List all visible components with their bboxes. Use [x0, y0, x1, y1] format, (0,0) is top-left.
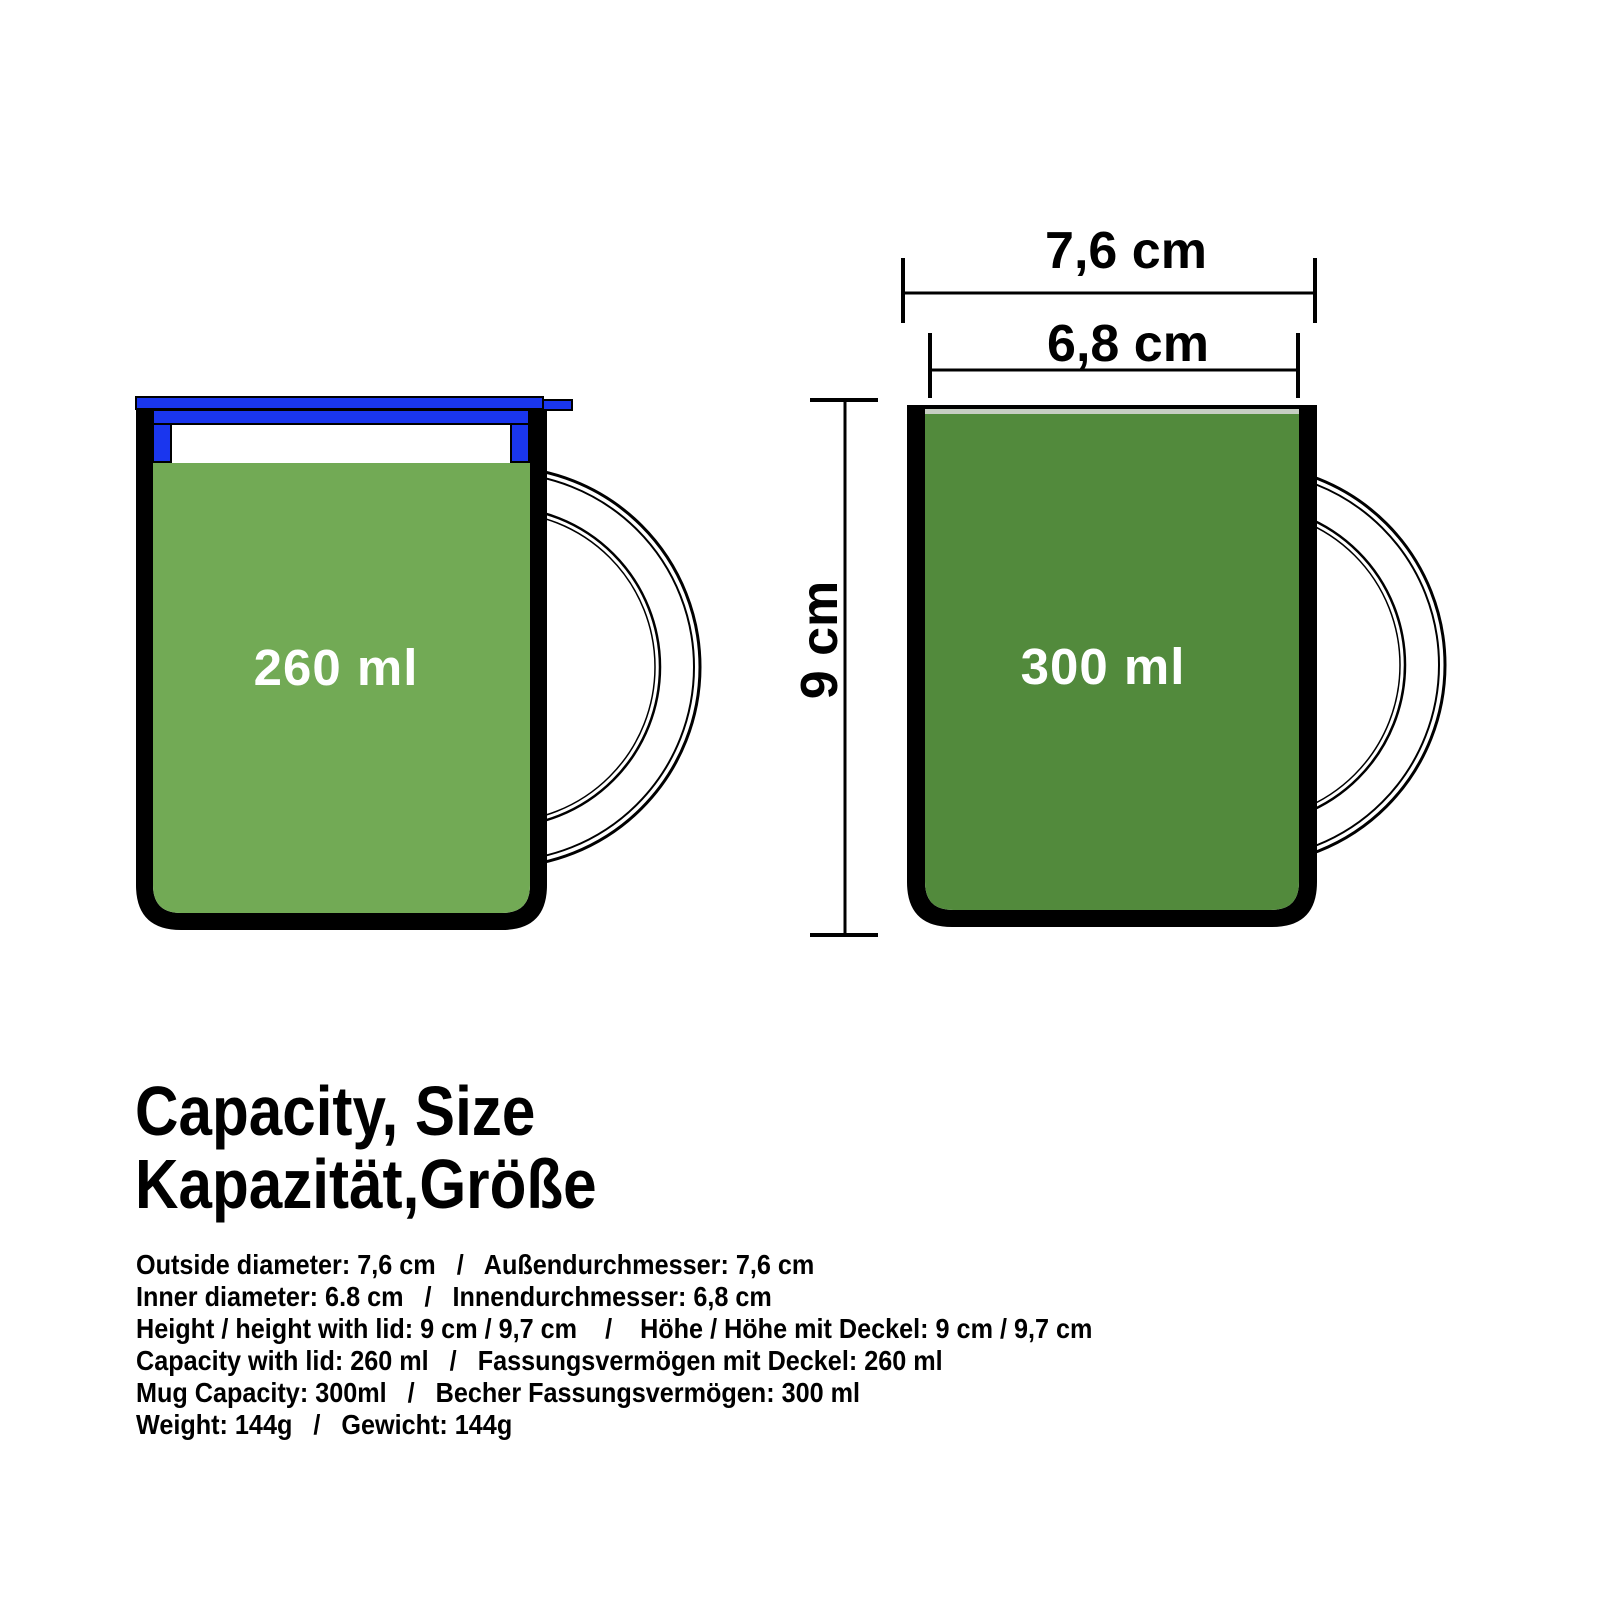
spec-height: Height / height with lid: 9 cm / 9,7 cm …	[136, 1315, 1092, 1343]
lid-plug-tab-left	[153, 424, 171, 462]
right-mug-capacity-label: 300 ml	[1021, 641, 1186, 692]
title-german: Kapazität,Größe	[135, 1149, 597, 1219]
height-label: 9 cm	[794, 581, 846, 700]
left-mug-capacity-label: 260 ml	[254, 642, 419, 693]
lid-skirt-bar	[153, 410, 529, 424]
lid-top-bar	[136, 397, 543, 409]
lid-lip	[543, 400, 572, 410]
outer-diameter-label: 7,6 cm	[1045, 225, 1207, 277]
left-mug-lid	[136, 397, 572, 462]
spec-weight: Weight: 144g / Gewicht: 144g	[136, 1411, 512, 1439]
inner-diameter-label: 6,8 cm	[1047, 318, 1209, 370]
spec-inner-diameter: Inner diameter: 6.8 cm / Innendurchmesse…	[136, 1283, 772, 1311]
spec-mug-capacity: Mug Capacity: 300ml / Becher Fassungsver…	[136, 1379, 860, 1407]
title-english: Capacity, Size	[135, 1076, 535, 1146]
lid-plug-tab-right	[511, 424, 529, 462]
spec-capacity-with-lid: Capacity with lid: 260 ml / Fassungsverm…	[136, 1347, 943, 1375]
right-mug-rim-line	[907, 405, 1317, 409]
right-mug-rim-strip	[925, 409, 1299, 414]
product-dimension-diagram: 7,6 cm 6,8 cm 9 cm 260 ml 300 ml Capacit…	[0, 0, 1600, 1600]
spec-outside-diameter: Outside diameter: 7,6 cm / Außendurchmes…	[136, 1251, 814, 1279]
